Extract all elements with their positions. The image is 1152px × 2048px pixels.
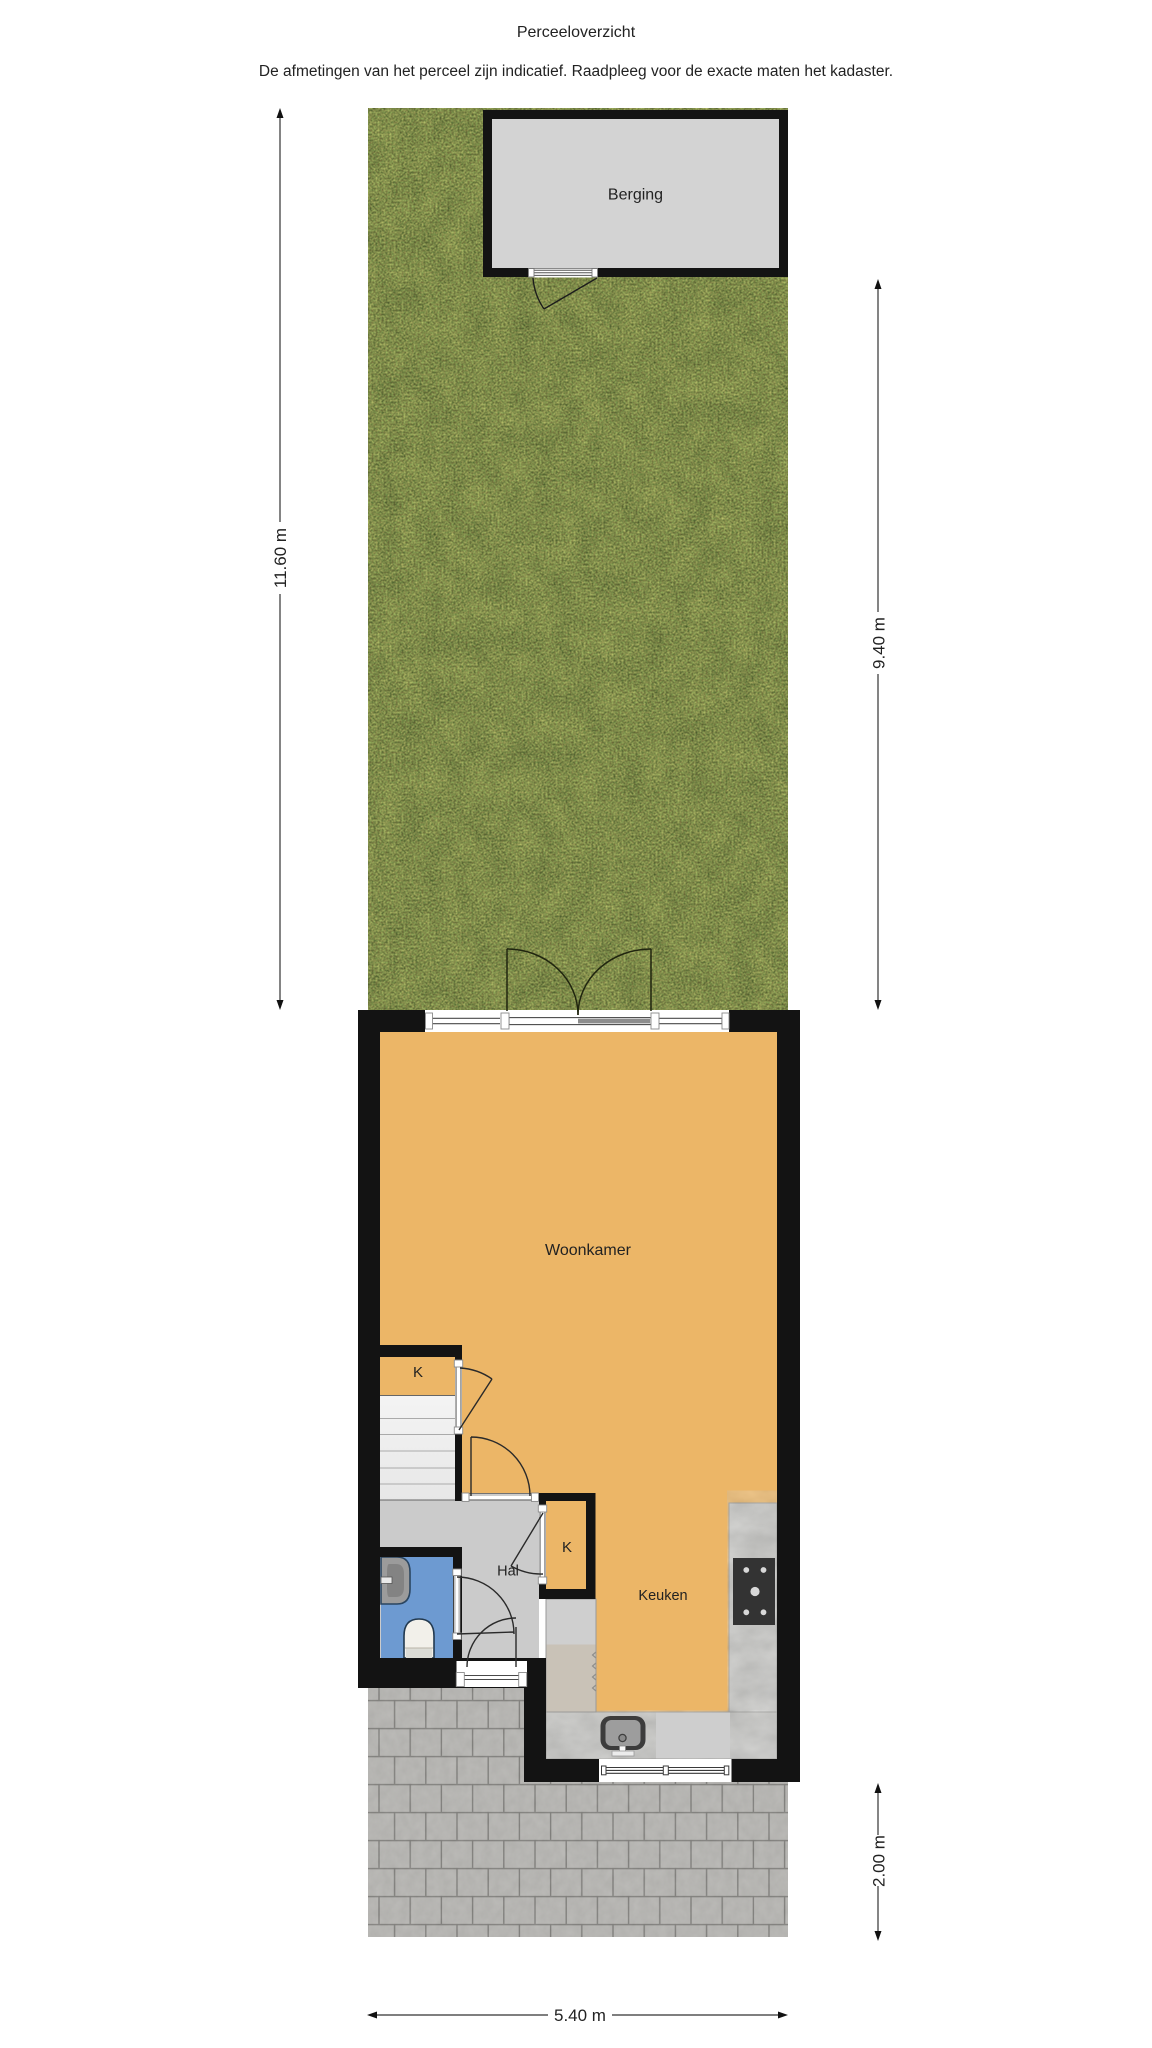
svg-text:9.40 m: 9.40 m — [870, 617, 889, 669]
svg-text:Keuken: Keuken — [638, 1588, 687, 1604]
svg-text:Berging: Berging — [608, 187, 663, 204]
svg-text:11.60 m: 11.60 m — [271, 528, 290, 588]
svg-text:Hal: Hal — [497, 1564, 519, 1580]
svg-text:De afmetingen van het perceel: De afmetingen van het perceel zijn indic… — [259, 63, 893, 80]
svg-text:K: K — [413, 1364, 423, 1381]
svg-text:5.40 m: 5.40 m — [554, 2006, 606, 2025]
svg-text:2.00 m: 2.00 m — [870, 1835, 889, 1887]
svg-text:Woonkamer: Woonkamer — [545, 1242, 632, 1259]
svg-text:Perceeloverzicht: Perceeloverzicht — [517, 24, 636, 41]
svg-text:K: K — [562, 1539, 572, 1556]
